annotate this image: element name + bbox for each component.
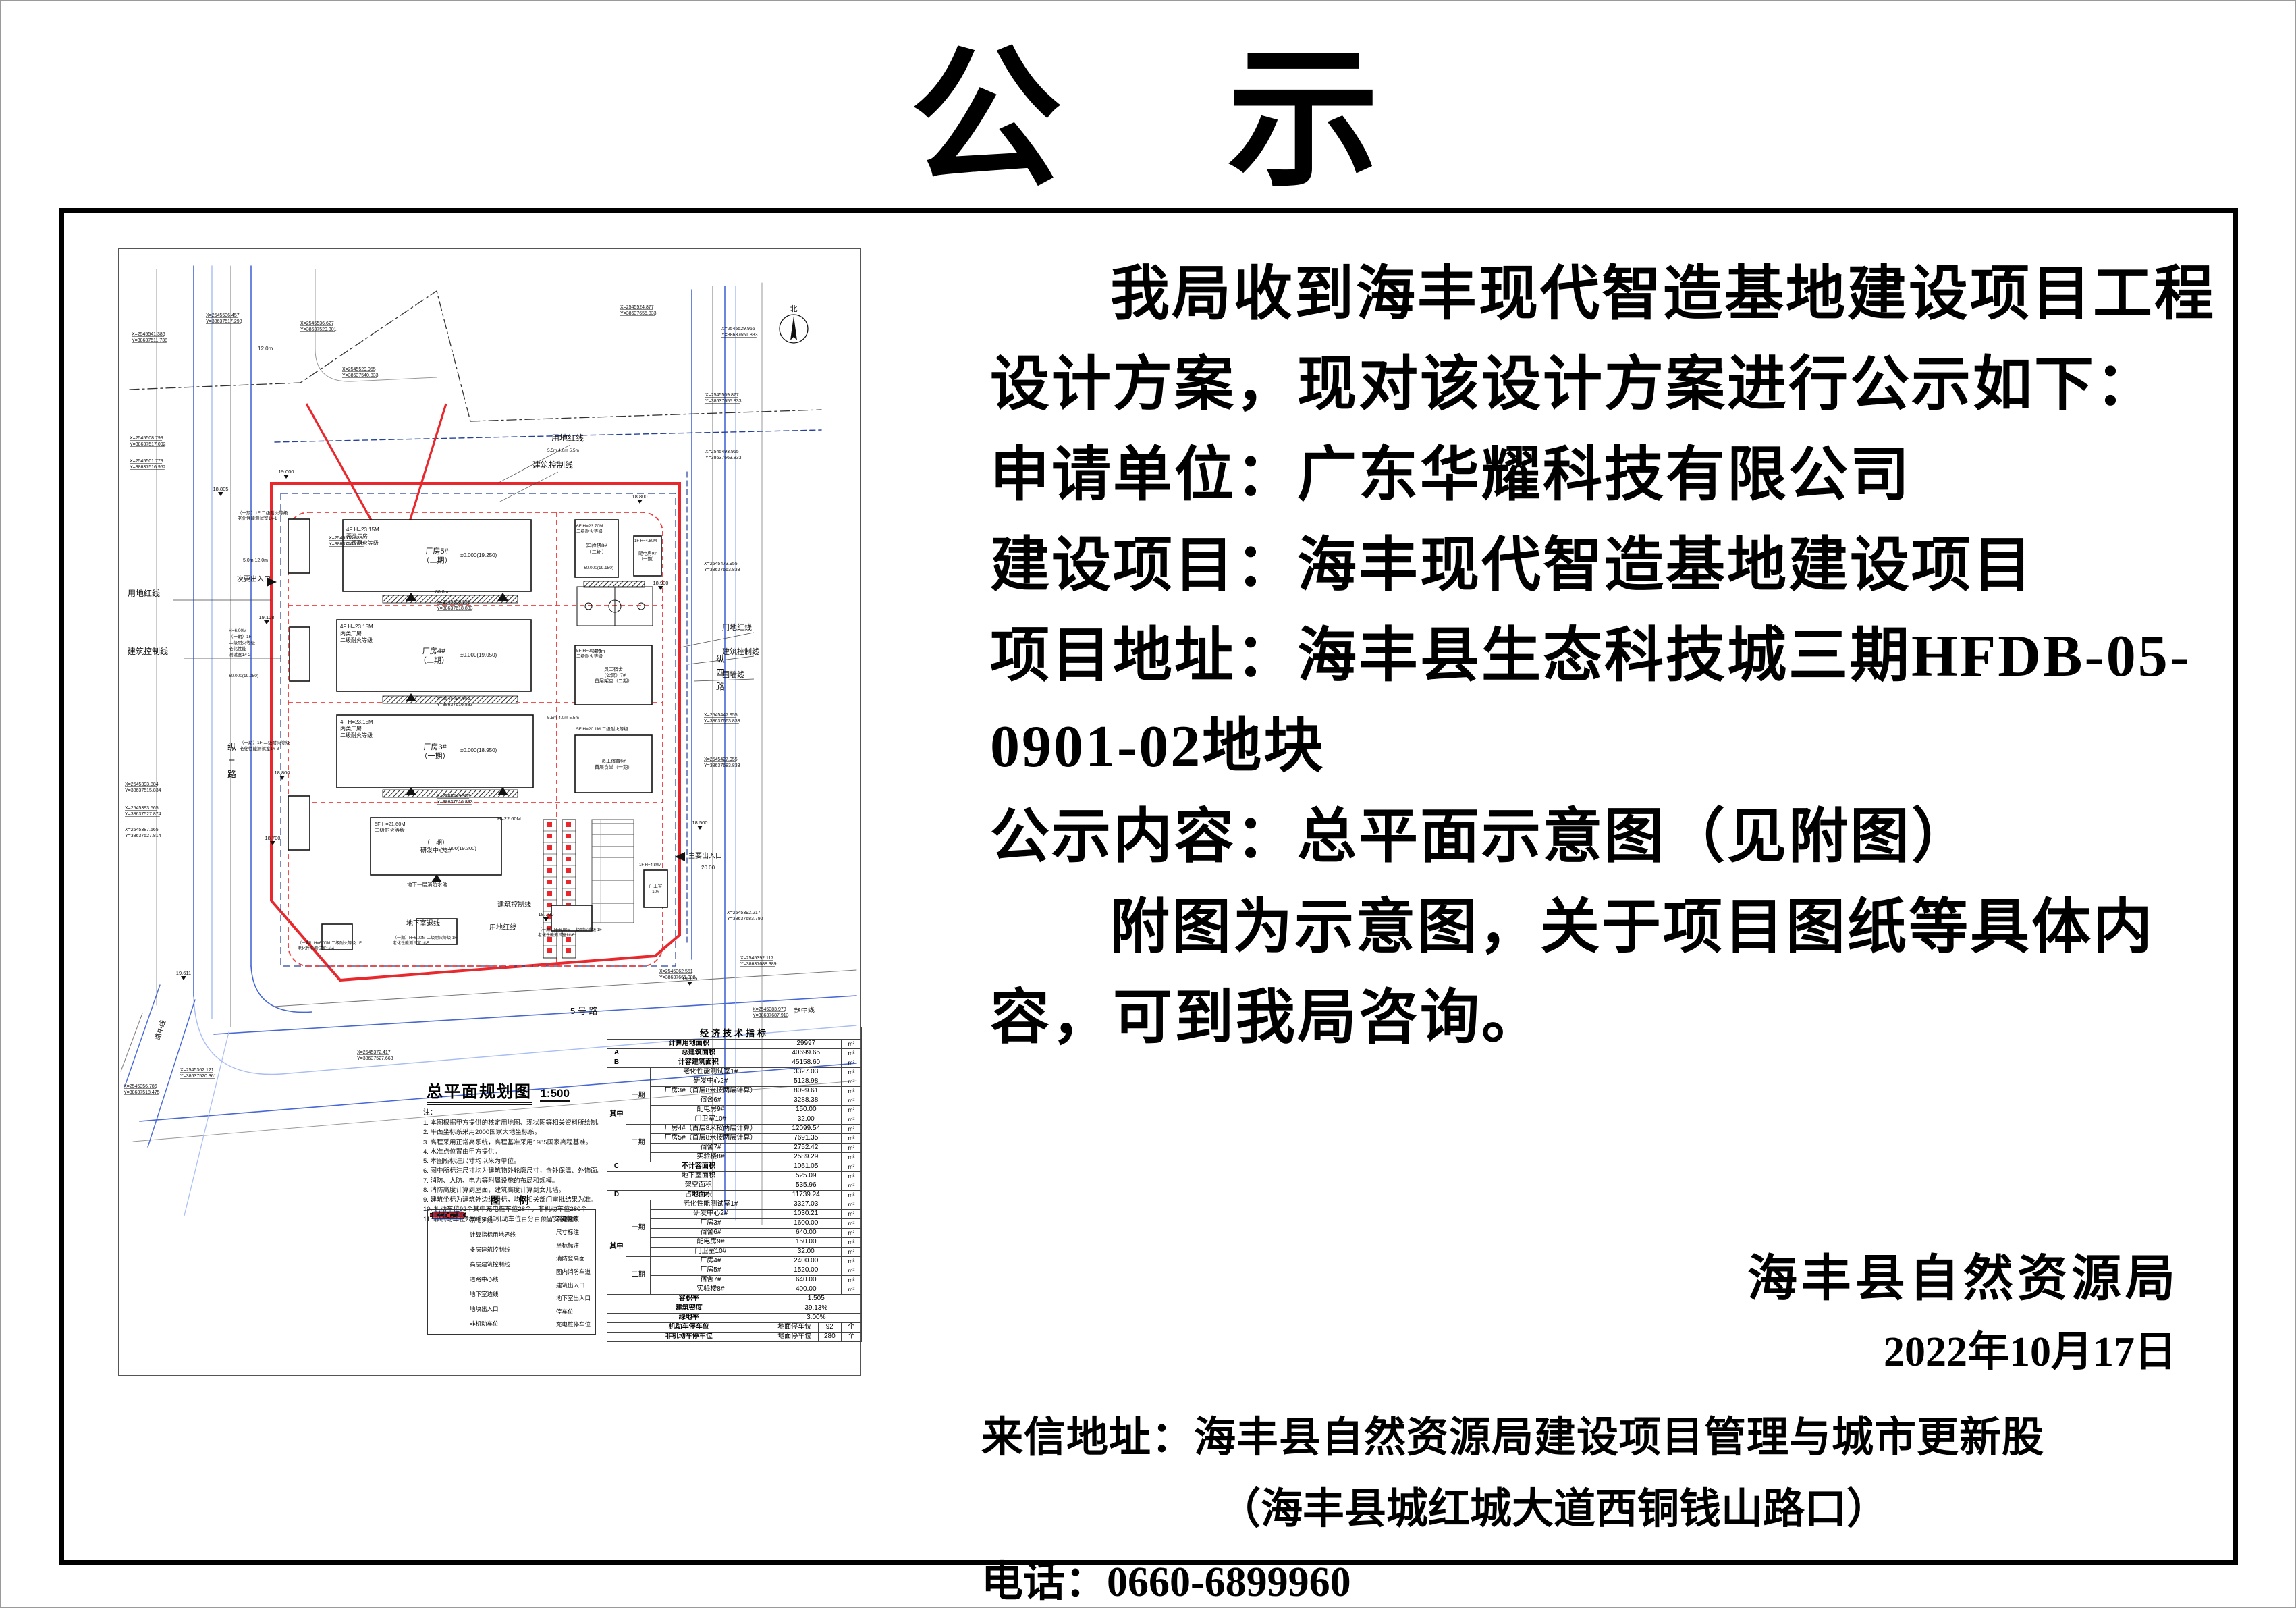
svg-text:19.108: 19.108 — [259, 614, 275, 620]
signature-agency: 海丰县自然资源局 — [990, 1238, 2179, 1310]
plan-label: 测试室1#-2 — [229, 651, 251, 658]
econ-table-row: 其中一期老化性能测试室1#3327.03m² — [607, 1068, 862, 1077]
building-aging-test-1 — [288, 519, 310, 573]
svg-text:员工宿舍: 员工宿舍 — [604, 666, 623, 672]
multi-control-line-icon — [429, 1244, 470, 1255]
legend-item: 消防登高面 — [516, 1252, 594, 1265]
plan-label: （一期）1F — [229, 634, 252, 639]
plan-label: 建筑控制线 — [497, 900, 531, 909]
notice-body-line: 申请单位：广东华耀科技有限公司 — [990, 431, 2205, 521]
legend-item: 多层建筑控制线 — [429, 1243, 516, 1256]
svg-text:X=2545393.565: X=2545393.565 — [125, 806, 159, 811]
econ-table-row: 建筑密度39.13% — [607, 1304, 862, 1314]
svg-text:18.800: 18.800 — [275, 770, 290, 776]
legend-item: 地下室边线 — [429, 1288, 516, 1301]
elevation-mark: 18.900 — [653, 580, 669, 590]
plan-label: 二级耐火等级 — [340, 637, 373, 643]
svg-text:厂房3#: 厂房3# — [423, 743, 447, 751]
plan-label: 围墙线 — [722, 670, 744, 679]
notice-body-line: 公示内容：总平面示意图（见附图） — [990, 793, 2205, 883]
svg-text:门卫室: 门卫室 — [649, 883, 663, 889]
contact-address-line1: 来信地址：海丰县自然资源局建设项目管理与城市更新股 — [981, 1403, 2196, 1464]
svg-text:（一期）: （一期） — [639, 556, 657, 562]
signature-block: 海丰县自然资源局 2022年10月17日 — [990, 1238, 2179, 1378]
plan-label: 建筑控制线 — [128, 646, 168, 656]
legend-item-label: 地下室边线 — [470, 1290, 499, 1298]
svg-text:X=2545392.117: X=2545392.117 — [740, 956, 773, 961]
svg-text:Y=38637540.833: Y=38637540.833 — [342, 373, 379, 378]
svg-text:X=2545362.121: X=2545362.121 — [180, 1068, 214, 1073]
bike-parking-icon — [429, 1318, 470, 1329]
road-centerline-icon — [429, 1274, 470, 1285]
building-factory-3: 厂房3#（一期） — [337, 715, 533, 788]
svg-text:Y=38637655.833: Y=38637655.833 — [620, 311, 657, 316]
svg-text:X=2545427.955: X=2545427.955 — [704, 757, 738, 762]
plan-label: ±0.000(19.050) — [460, 652, 497, 658]
notice-body-line: 项目地址：海丰县生态科技城三期HFDB-05- — [990, 612, 2205, 702]
svg-text:X=2545524.877: X=2545524.877 — [620, 305, 654, 310]
plan-label: 5.5m 4.0m 5.5m — [547, 448, 579, 453]
legend-item: 计算指标用地界线 — [429, 1229, 516, 1241]
svg-text:（二期）: （二期） — [419, 656, 449, 665]
econ-table-row: 机动车停车位地面停车位92个 — [607, 1323, 862, 1333]
fire-lane-icon — [516, 1266, 556, 1277]
coordinate-callout: X=2545529.955Y=38637651.833 — [721, 327, 758, 338]
svg-text:X=2545447.955: X=2545447.955 — [704, 713, 738, 718]
plan-label: 二级耐火等级 — [340, 732, 373, 739]
svg-text:X=2545449.955: X=2545449.955 — [437, 794, 470, 799]
elevation-mark: 19.000 — [279, 468, 294, 479]
building-entrance-icon — [516, 1280, 556, 1291]
high-control-line-icon — [429, 1259, 470, 1270]
legend-column-left: 宗地界线计算指标用地界线多层建筑控制线高层建筑控制线道路中心线地下室边线地块出入… — [429, 1212, 516, 1331]
legend-item-label: 图内消防车道 — [556, 1268, 591, 1276]
svg-text:X=2545362.551: X=2545362.551 — [659, 969, 693, 974]
building-guard-room-10: 门卫室10# — [644, 870, 667, 907]
svg-text:X=2545493.955: X=2545493.955 — [705, 450, 739, 454]
calc-boundary-line-icon — [429, 1229, 470, 1240]
svg-text:实验楼8#: 实验楼8# — [586, 541, 608, 548]
svg-text:Y=38637663.833: Y=38637663.833 — [705, 456, 742, 460]
legend-item: 图内消防车道 — [516, 1265, 594, 1278]
svg-text:X=2545501.779: X=2545501.779 — [130, 459, 163, 464]
plan-label: ±0.000(19.300) — [442, 845, 476, 851]
plan-label: 丙类厂房 — [340, 630, 362, 637]
building-aging-test-4 — [322, 924, 352, 950]
econ-table-row: 非机动车停车位地面停车位280个 — [607, 1333, 862, 1342]
legend-item: 地块出入口 — [429, 1303, 516, 1316]
coordinate-icon: X=2545483.04Y=38637494.98 — [516, 1240, 556, 1251]
plan-label: 80.0m — [435, 590, 449, 595]
legend-item-label: 新建建筑 — [556, 1215, 579, 1223]
plan-label: H=6.00M — [229, 628, 247, 633]
econ-table-row: 二期厂房4#（首层8米按两层计算）12099.54m² — [607, 1125, 862, 1134]
svg-text:Y=38637663.833: Y=38637663.833 — [704, 719, 740, 724]
svg-text:X=2545529.955: X=2545529.955 — [721, 327, 755, 331]
legend-item: 新建建筑 — [516, 1212, 594, 1225]
legend-item: 道路中心线 — [429, 1273, 516, 1286]
svg-text:X=2545508.799: X=2545508.799 — [130, 436, 163, 441]
svg-text:X=2545509.955: X=2545509.955 — [437, 600, 470, 605]
econ-table-row: 地下室面积525.09m² — [607, 1172, 862, 1181]
svg-text:Y=38637651.833: Y=38637651.833 — [721, 333, 758, 338]
legend-item-label: 高层建筑控制线 — [470, 1260, 510, 1268]
coordinate-callout: X=2545427.955Y=38637683.833 — [704, 757, 740, 768]
plan-label: 丙类厂房 — [340, 725, 362, 732]
plan-label: 老化性能测试室1#-6 — [538, 932, 575, 938]
svg-text:Y=38637518.475: Y=38637518.475 — [124, 1090, 160, 1095]
plan-label: 地下室退线 — [406, 919, 440, 928]
econ-table-row: 经济技术指标 — [607, 1027, 862, 1040]
svg-text:X=2545473.955: X=2545473.955 — [704, 562, 738, 566]
svg-text:X=2545383.978: X=2545383.978 — [753, 1007, 786, 1012]
svg-text:Y=38637655.833: Y=38637655.833 — [705, 399, 742, 404]
plan-label: 二级耐火等级 — [576, 528, 603, 534]
elevation-mark: 18.700 — [265, 835, 281, 845]
notice-body-line: 建设项目：海丰现代智造基地建设项目 — [990, 521, 2205, 612]
signature-date: 2022年10月17日 — [990, 1317, 2179, 1378]
plan-label: （一期）H=6.00M 二级耐火等级 1F — [393, 935, 457, 940]
svg-text:首层食堂（一期）: 首层食堂（一期） — [595, 763, 632, 770]
plan-label: 老化性能测试室1#-3 — [240, 745, 279, 751]
svg-text:X=2545536.627: X=2545536.627 — [300, 321, 334, 326]
plan-label: 老化性能 — [229, 645, 247, 651]
econ-table-row: 其中一期老化性能测试室1#3327.03m² — [607, 1200, 862, 1210]
svg-text:10#: 10# — [652, 890, 659, 894]
plan-title: 总平面规划图 — [427, 1083, 532, 1105]
coordinate-callout: X=2545524.877Y=38637655.833 — [620, 305, 657, 316]
plan-label: 纵三路 — [227, 742, 236, 779]
legend-box: 宗地界线计算指标用地界线多层建筑控制线高层建筑控制线道路中心线地下室边线地块出入… — [427, 1209, 596, 1335]
coordinate-callout: X=2545383.978Y=38637687.913 — [753, 1007, 789, 1018]
plan-label: 丙类厂房 — [346, 533, 368, 539]
econ-table-row: 架空面积535.96m² — [607, 1181, 862, 1191]
coordinate-callout: X=2545447.955Y=38637663.833 — [704, 713, 740, 724]
svg-text:Y=38637515.834: Y=38637515.834 — [125, 788, 161, 793]
plan-label: 用地红线 — [489, 923, 516, 932]
svg-text:厂房4#: 厂房4# — [422, 647, 446, 655]
basement-entrance-icon — [516, 1293, 556, 1304]
plan-label: 主要出入口 — [688, 851, 722, 860]
plan-label: 4F H=23.15M — [346, 527, 379, 533]
legend-item: X=2545483.04Y=38637494.98坐标标注 — [516, 1239, 594, 1252]
legend-column-right: 新建建筑16.8m尺寸标注X=2545483.04Y=38637494.98坐标… — [516, 1212, 594, 1331]
plan-label: H=22.60M — [497, 815, 521, 822]
svg-text:X=2545509.877: X=2545509.877 — [705, 393, 739, 398]
svg-text:18.900: 18.900 — [653, 580, 669, 586]
svg-text:Y=38637618.833: Y=38637618.833 — [437, 606, 473, 611]
econ-table-row: A总建筑面积40699.65m² — [607, 1049, 862, 1058]
plan-label: （一期）H=6.00M 二级耐火等级 1F — [538, 927, 602, 932]
svg-text:Y=38637663.833: Y=38637663.833 — [704, 568, 740, 572]
coordinate-callout: X=2545356.786Y=38637518.475 — [124, 1084, 160, 1095]
legend-item-label: 地块出入口 — [470, 1305, 499, 1313]
notice-body-line: 附图为示意图，关于项目图纸等具体内 — [990, 883, 2205, 973]
plan-label: ±0.000(19.150) — [584, 566, 613, 570]
svg-text:（二期）: （二期） — [586, 549, 607, 555]
elevation-mark: 18.800 — [632, 493, 648, 504]
elevation-mark: 18.800 — [275, 770, 290, 780]
plan-label: （一期）1F 二级耐火等级 — [240, 739, 290, 745]
plan-label: 次要出入口 — [237, 574, 271, 583]
legend-item: 停车位 — [516, 1305, 594, 1318]
legend-item-label: 建筑出入口 — [556, 1281, 585, 1289]
coordinate-callout: X=2545372.417Y=38637527.663 — [357, 1050, 393, 1061]
svg-text:首层架空（二期）: 首层架空（二期） — [595, 678, 632, 684]
legend-item: 地下室出入口 — [516, 1292, 594, 1305]
coordinate-callout: X=2545387.565Y=38637527.814 — [125, 828, 161, 838]
plan-label: 1F H=4.80M — [634, 539, 657, 543]
svg-text:（一期）: （一期） — [420, 752, 450, 761]
plan-label: ±0.000(18.950) — [460, 747, 497, 753]
coordinate-callout: X=2545536.627Y=38637529.301 — [300, 321, 337, 332]
plan-label: 建筑控制线 — [532, 460, 573, 470]
legend-item: 16.8m尺寸标注 — [516, 1226, 594, 1239]
plan-label: 20.00 — [701, 865, 715, 871]
dimension-icon: 16.8m — [516, 1227, 556, 1237]
svg-text:X=2545494.955: X=2545494.955 — [437, 697, 470, 701]
basement-edge-line-icon — [429, 1289, 470, 1299]
svg-text:X=2545541.386: X=2545541.386 — [132, 332, 165, 337]
building-aging-test-6 — [551, 905, 592, 931]
plan-label: 老化性能测试室1#-5 — [393, 940, 430, 946]
svg-text:19.135: 19.135 — [682, 975, 698, 982]
elevation-mark: 18.500 — [692, 820, 708, 830]
coordinate-callout: X=2545473.955Y=38637663.833 — [704, 562, 740, 572]
econ-table-row: 计算用地面积29997m² — [607, 1040, 862, 1049]
notice-body-line: 0901-02地块 — [990, 702, 2205, 793]
svg-text:18.500: 18.500 — [692, 820, 708, 826]
svg-text:19.611: 19.611 — [176, 970, 191, 976]
plan-label: （一期）H=6.00M 二级耐火等级 1F — [298, 940, 362, 946]
coordinate-callout: X=2545536.457Y=38637517.298 — [206, 313, 242, 324]
plan-label: 4F H=23.15M — [340, 719, 373, 725]
svg-text:X=2545392.217: X=2545392.217 — [727, 911, 761, 915]
notice-body-line: 容，可到我局咨询。 — [990, 973, 2205, 1064]
svg-text:Y=38637520.361: Y=38637520.361 — [180, 1074, 217, 1079]
plan-label: 纵四路 — [716, 654, 725, 691]
plan-label: 5F H=21.60M — [375, 821, 406, 827]
coordinate-callout: X=2545393.884Y=38637515.834 — [125, 782, 161, 793]
econ-table-row: B计容建筑面积45158.60m² — [607, 1058, 862, 1068]
svg-text:Y=38637527.874: Y=38637527.874 — [125, 812, 161, 817]
notice-body-line: 设计方案，现对该设计方案进行公示如下： — [990, 340, 2205, 431]
legend-title: 图 例 — [427, 1193, 596, 1207]
plan-label: 用地红线 — [722, 622, 752, 632]
legend-item-label: 消防登高面 — [556, 1254, 585, 1262]
plan-label: 4F H=23.15M — [340, 624, 373, 630]
plan-label: 用地红线 — [128, 588, 160, 598]
legend-item-label: 尺寸标注 — [556, 1228, 579, 1236]
svg-text:配电房9#: 配电房9# — [638, 550, 657, 556]
notice-page: 公 示 — [0, 0, 2296, 1608]
legend-item: 高层建筑控制线 — [429, 1258, 516, 1271]
svg-text:X=2545393.884: X=2545393.884 — [125, 782, 159, 787]
building-dorm-6: 员工宿舍6#首层食堂（一期） — [575, 735, 652, 793]
new-building-icon — [516, 1214, 556, 1225]
plan-label: 二级耐火等级 — [346, 539, 379, 546]
svg-text:厂房5#: 厂房5# — [425, 547, 449, 556]
plan-label: 老化性能测试室1#-1 — [238, 515, 277, 521]
svg-text:Y=38637527.663: Y=38637527.663 — [357, 1056, 393, 1061]
plan-label: （一期）1F 二级耐火等级 — [238, 510, 288, 516]
contact-block: 来信地址：海丰县自然资源局建设项目管理与城市更新股 （海丰县城红城大道西铜钱山路… — [981, 1403, 2196, 1608]
svg-text:18.700: 18.700 — [265, 835, 281, 841]
svg-text:X=2545372.417: X=2545372.417 — [357, 1050, 391, 1055]
plan-label: 5.5m 4.0m 5.5m — [547, 716, 579, 720]
svg-text:Y=38637683.833: Y=38637683.833 — [704, 763, 740, 768]
notice-body-line: 我局收到海丰现代智造基地建设项目工程 — [990, 250, 2205, 340]
svg-text:Y=38637511.738: Y=38637511.738 — [132, 338, 167, 343]
site-plan-drawing: 厂房5#（二期）厂房4#（二期）厂房3#（一期）（一期）研发中心2#实验楼8#（… — [118, 248, 861, 1376]
legend-item-label: 计算指标用地界线 — [470, 1231, 516, 1239]
econ-table-row: 容积率1.505 — [607, 1295, 862, 1304]
plan-label: 路中线 — [153, 1019, 167, 1041]
legend-item-label: 坐标标注 — [556, 1241, 579, 1250]
legend-item-label: 道路中心线 — [470, 1275, 499, 1283]
svg-text:X=2545536.457: X=2545536.457 — [206, 313, 240, 318]
coordinate-callout: X=2545501.779Y=38637516.952 — [130, 459, 166, 470]
legend-item: 充电桩停车位 — [516, 1318, 594, 1331]
legend-item: 非机动车位 — [429, 1318, 516, 1331]
plan-label: 二级耐火等级 — [229, 639, 256, 645]
elevation-mark: 18.805 — [213, 486, 229, 496]
site-entrance-icon — [429, 1304, 470, 1314]
svg-text:Y=38637529.301: Y=38637529.301 — [300, 327, 337, 332]
svg-text:19.000: 19.000 — [279, 468, 294, 475]
svg-text:Y=38637517.298: Y=38637517.298 — [206, 319, 242, 324]
svg-text:Y=38637517.092: Y=38637517.092 — [130, 442, 166, 447]
building-factory-4: 厂房4#（二期） — [337, 620, 531, 691]
svg-text:Y=38637527.814: Y=38637527.814 — [125, 834, 161, 838]
svg-text:（公寓）7#: （公寓）7# — [601, 672, 626, 678]
legend-item-label: 停车位 — [556, 1308, 574, 1316]
plan-label: 5.0m 12.0m — [243, 558, 268, 563]
plan-label: 1F H=4.80M — [639, 863, 661, 867]
coordinate-callout: X=2545529.955Y=38637540.833 — [342, 367, 379, 378]
page-title: 公 示 — [1, 41, 2295, 200]
building-aging-test-3 — [288, 796, 310, 850]
parking-space-icon — [516, 1306, 556, 1317]
svg-text:Y=38637687.913: Y=38637687.913 — [753, 1013, 789, 1018]
economic-indicator-table: 经济技术指标计算用地面积29997m²A总建筑面积40699.65m²B计容建筑… — [607, 1027, 862, 1342]
plan-label: ±0.000(19.050) — [229, 674, 258, 678]
coordinate-callout: X=2545393.565Y=38637527.874 — [125, 806, 161, 817]
legend-item-label: 地下室出入口 — [556, 1294, 591, 1302]
contact-phone: 电话：0660-6899960 — [981, 1547, 2196, 1608]
building-aging-test-2 — [290, 627, 310, 681]
svg-text:18.800: 18.800 — [632, 493, 648, 500]
svg-text:18.805: 18.805 — [213, 486, 229, 492]
econ-table-row: 二期厂房4#2400.00m² — [607, 1257, 862, 1266]
ev-parking-space-icon — [516, 1319, 556, 1330]
legend-item-label: 非机动车位 — [470, 1320, 499, 1328]
plan-label: 5 号 路 — [570, 1006, 597, 1016]
coordinate-callout: X=2545392.217Y=38637683.790 — [727, 911, 763, 921]
coordinate-callout: X=2545541.386Y=38637511.738 — [132, 332, 167, 343]
coordinate-callout: X=2545449.955Y=38637616.833 — [437, 794, 473, 805]
fire-access-face-icon — [516, 1253, 556, 1264]
svg-text:Y=38637616.833: Y=38637616.833 — [437, 703, 473, 707]
plan-caption: 总平面规划图 1:500 — [427, 1078, 570, 1102]
plan-label: 用地红线 — [551, 433, 584, 443]
plan-label: 12.0m — [258, 346, 273, 352]
plan-label: 北 — [790, 304, 798, 313]
plan-label: 32.0m — [592, 649, 605, 654]
coordinate-callout: X=2545392.117Y=38637688.389 — [740, 956, 777, 967]
svg-text:Y=38637616.833: Y=38637616.833 — [437, 800, 473, 805]
econ-table-row: D占地面积11739.24m² — [607, 1191, 862, 1200]
legend-item-label: 充电桩停车位 — [556, 1320, 591, 1329]
north-arrow-icon — [780, 315, 808, 343]
svg-text:Y=38637683.790: Y=38637683.790 — [727, 917, 763, 921]
notice-body: 我局收到海丰现代智造基地建设项目工程设计方案，现对该设计方案进行公示如下：申请单… — [990, 250, 2205, 1064]
econ-table-row: C不计容面积1061.05m² — [607, 1162, 862, 1172]
svg-text:18.700: 18.700 — [539, 911, 554, 917]
plan-label: 5F H=20.1M 二级耐火等级 — [576, 726, 628, 732]
elevation-mark: 19.135 — [682, 975, 698, 986]
svg-text:（二期）: （二期） — [422, 556, 452, 565]
plan-label: 二级耐火等级 — [375, 826, 405, 833]
svg-text:Y=38637516.952: Y=38637516.952 — [130, 465, 166, 470]
coordinate-callout: X=2545508.799Y=38637517.092 — [130, 436, 166, 447]
plan-label: 6F H=23.70M — [576, 524, 603, 529]
svg-text:Y=38637688.389: Y=38637688.389 — [740, 962, 777, 967]
plan-label: ±0.000(19.250) — [460, 552, 497, 558]
plan-label: 地下一层消防水池 — [407, 881, 447, 888]
legend-item-label: 宗地界线 — [470, 1216, 493, 1224]
elevation-mark: 19.611 — [176, 970, 191, 980]
legend-item: 建筑出入口 — [516, 1279, 594, 1291]
svg-text:X=2545387.565: X=2545387.565 — [125, 828, 159, 832]
plan-label: 路中线 — [794, 1005, 815, 1015]
svg-text:X=2545529.955: X=2545529.955 — [342, 367, 376, 372]
plan-label: 建筑控制线 — [722, 647, 759, 656]
contact-address-line2: （海丰县城红城大道西铜钱山路口） — [981, 1474, 2196, 1535]
plan-scale: 1:500 — [540, 1087, 569, 1102]
legend-item-label: 多层建筑控制线 — [470, 1245, 510, 1254]
coordinate-callout: X=2545362.121Y=38637520.361 — [180, 1068, 217, 1079]
econ-table-row: 绿地率3.00% — [607, 1314, 862, 1323]
svg-text:X=2545356.786: X=2545356.786 — [124, 1084, 157, 1089]
svg-text:员工宿舍6#: 员工宿舍6# — [601, 758, 626, 764]
plan-label: 老化性能测试室1#-4 — [298, 946, 335, 951]
